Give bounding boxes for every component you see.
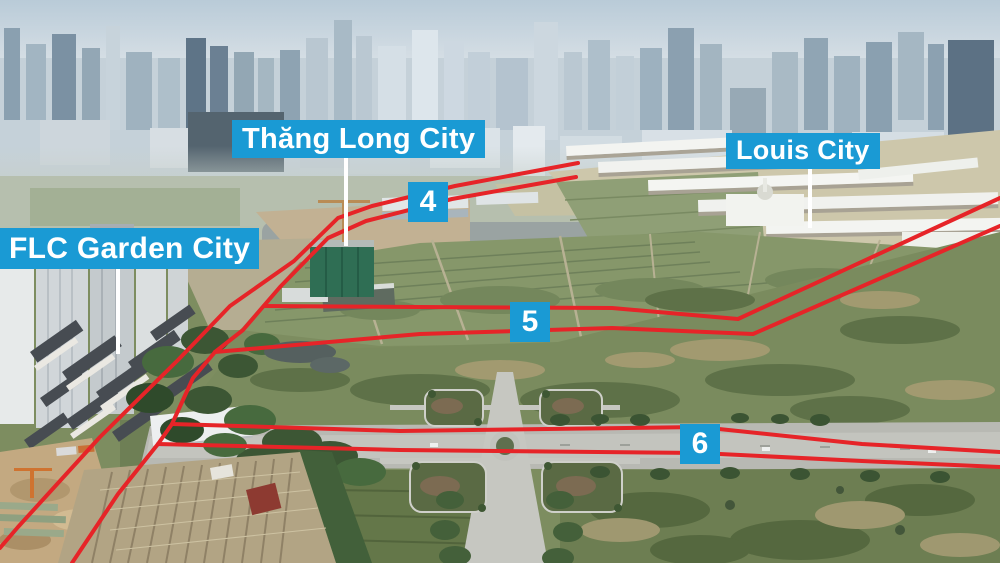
aerial-photo-background (0, 0, 1000, 563)
label-flc-garden-city: FLC Garden City (0, 228, 259, 269)
marker-6: 6 (680, 424, 720, 464)
marker-5: 5 (510, 302, 550, 342)
label-thang-long-city: Thăng Long City (232, 120, 485, 158)
marker-4: 4 (408, 182, 448, 222)
aerial-photo: Thăng Long City Louis City FLC Garden Ci… (0, 0, 1000, 563)
label-louis-city: Louis City (726, 133, 880, 169)
